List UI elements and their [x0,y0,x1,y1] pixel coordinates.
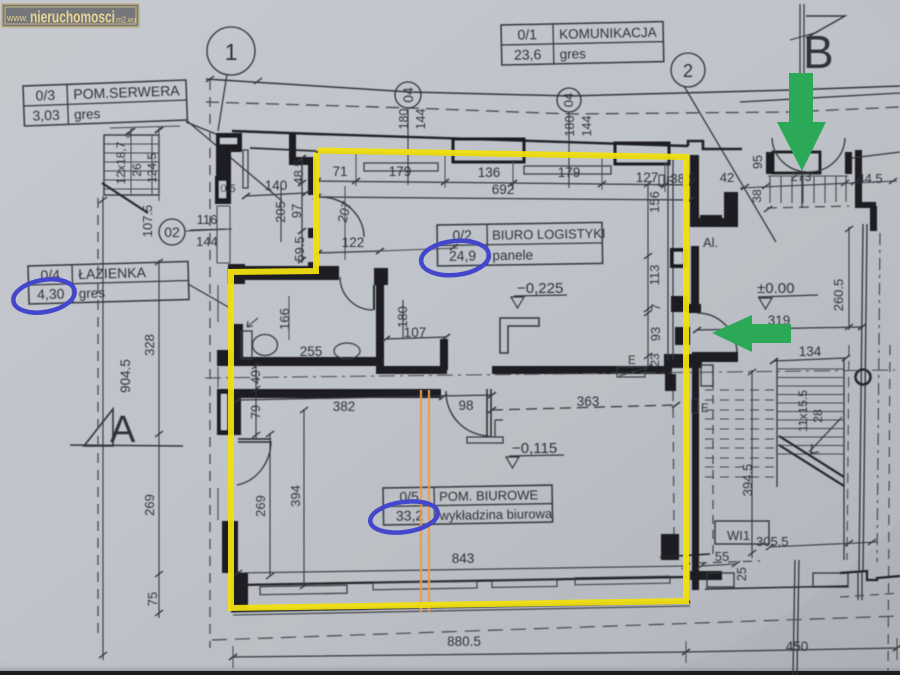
svg-text:panele: panele [492,247,533,263]
svg-text:gres: gres [79,285,106,301]
svg-text:KOMUNIKACJA: KOMUNIKACJA [559,25,657,42]
svg-text:113: 113 [647,265,662,286]
svg-text:269: 269 [142,494,157,516]
svg-text:11x15.5: 11x15.5 [796,390,810,432]
svg-text:4,30: 4,30 [37,285,65,302]
svg-text:26: 26 [130,163,144,177]
svg-text:166: 166 [277,308,292,330]
svg-text:m2.eu: m2.eu [116,15,136,25]
svg-text:59.5: 59.5 [292,236,307,261]
svg-text:107.5: 107.5 [140,205,155,238]
svg-text:180: 180 [563,116,577,137]
svg-text:144: 144 [580,116,594,137]
svg-text:55: 55 [715,549,729,564]
svg-text:2: 2 [683,61,693,81]
svg-text:273: 273 [791,170,812,184]
svg-text:394.5: 394.5 [740,464,755,497]
svg-text:269: 269 [253,495,268,517]
svg-text:156: 156 [647,191,662,213]
svg-text:382: 382 [333,399,356,414]
svg-text:107: 107 [404,325,427,340]
svg-text:02: 02 [164,224,180,240]
svg-text:28: 28 [811,409,825,423]
svg-text:POM. BIUROWE: POM. BIUROWE [439,487,539,504]
svg-text:23,6: 23,6 [514,46,542,63]
svg-text:E: E [628,355,636,367]
svg-text:49: 49 [249,370,263,384]
svg-text:E: E [666,176,674,188]
svg-text:205: 205 [273,201,288,223]
svg-text:394: 394 [288,485,303,507]
svg-text:179: 179 [389,164,412,179]
svg-text:144: 144 [414,109,428,130]
svg-text:122: 122 [342,235,365,250]
svg-text:gres: gres [559,46,586,62]
svg-text:98: 98 [458,398,473,413]
svg-text:255: 255 [300,344,323,359]
svg-text:97: 97 [289,204,304,218]
svg-text:140: 140 [265,178,288,193]
svg-text:04: 04 [400,87,416,103]
svg-text:134: 134 [799,344,822,359]
svg-text:gres: gres [74,106,101,122]
svg-text:180: 180 [397,109,411,130]
svg-text:B: B [803,26,834,78]
svg-text:904.5: 904.5 [118,359,133,393]
svg-text:7: 7 [649,303,663,310]
svg-text:328: 328 [142,334,157,356]
svg-text:±0.00: ±0.00 [757,280,794,297]
svg-text:wykładzina biurowa: wykładzina biurowa [438,506,553,523]
svg-text:95: 95 [751,155,765,169]
svg-text:24,9: 24,9 [449,247,477,263]
svg-text:04: 04 [561,93,576,107]
svg-text:38: 38 [750,189,764,203]
svg-text:136: 136 [478,165,501,180]
svg-text:12x18,7: 12x18,7 [114,141,128,184]
svg-text:305.5: 305.5 [756,534,789,549]
svg-text:144: 144 [196,234,218,249]
svg-text:450: 450 [786,639,809,654]
svg-text:93: 93 [648,327,663,341]
svg-text:79: 79 [249,405,263,419]
svg-text:ŁAZIENKA: ŁAZIENKA [78,264,147,282]
svg-text:692: 692 [492,182,515,197]
svg-text:0.5: 0.5 [220,183,235,195]
svg-text:48.5: 48.5 [291,159,306,184]
svg-text:E: E [701,403,709,415]
svg-text:WI1: WI1 [727,528,750,543]
svg-text:25: 25 [735,567,749,581]
svg-text:179: 179 [558,165,581,180]
svg-text:Al.: Al. [703,235,718,250]
svg-text:363: 363 [577,394,600,409]
svg-text:127: 127 [636,170,659,185]
svg-text:0/1: 0/1 [517,26,537,42]
svg-text:116: 116 [197,212,218,227]
svg-text:33,2: 33,2 [396,507,424,523]
svg-text:843: 843 [452,551,475,566]
svg-text:260.5: 260.5 [831,279,846,312]
svg-text:−0,115: −0,115 [512,440,557,457]
svg-text:1: 1 [225,39,238,65]
svg-text:www.: www. [6,13,28,23]
svg-text:44.5: 44.5 [857,171,882,186]
svg-text:nieruchomosci: nieruchomosci [30,8,115,27]
svg-text:0/3: 0/3 [35,87,55,104]
svg-text:BIURO LOGISTYKI: BIURO LOGISTYKI [492,226,606,243]
svg-text:−0,225: −0,225 [517,280,563,297]
svg-text:23: 23 [648,353,662,367]
svg-text:880.5: 880.5 [447,634,481,649]
svg-text:124.5: 124.5 [145,153,159,183]
svg-text:71: 71 [332,164,347,179]
svg-text:42: 42 [720,170,734,185]
svg-text:75: 75 [145,592,160,606]
svg-text:3,03: 3,03 [32,107,60,124]
